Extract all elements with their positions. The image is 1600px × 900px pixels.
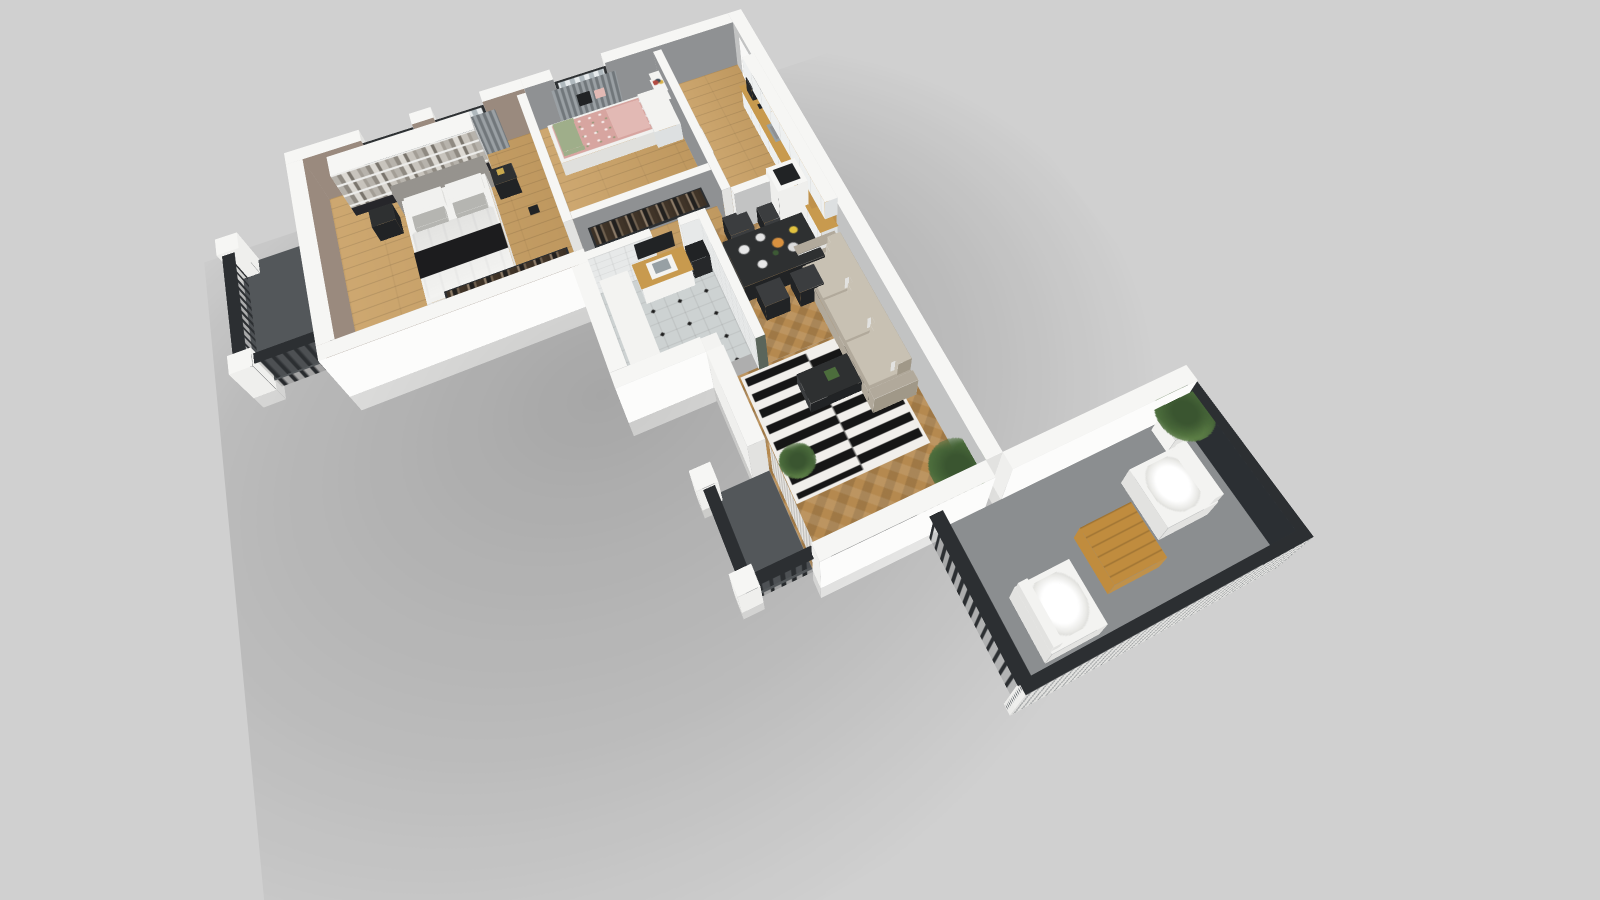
render-scene	[0, 0, 1600, 900]
floorplan-render	[0, 0, 1600, 900]
